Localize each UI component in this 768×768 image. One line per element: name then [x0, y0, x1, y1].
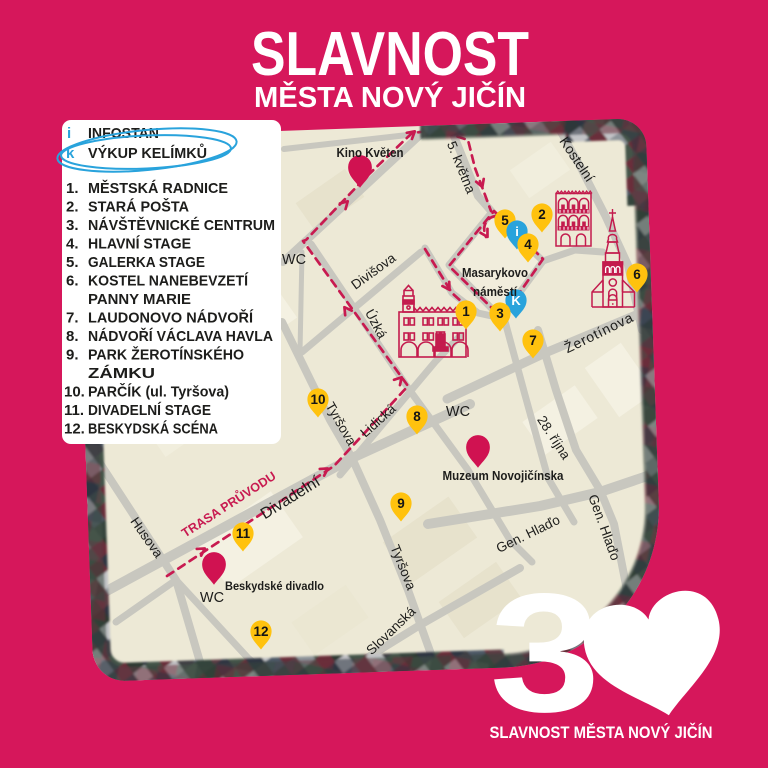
svg-text:4: 4	[524, 237, 532, 252]
svg-text:2.: 2.	[66, 199, 79, 216]
svg-text:PARK ŽEROTÍNSKÉHO: PARK ŽEROTÍNSKÉHO	[88, 346, 244, 364]
svg-text:MĚSTSKÁ RADNICE: MĚSTSKÁ RADNICE	[88, 179, 228, 197]
svg-text:Masarykovo: Masarykovo	[462, 265, 528, 280]
svg-text:7.: 7.	[66, 310, 79, 327]
svg-text:6.: 6.	[66, 273, 79, 290]
svg-text:2: 2	[538, 207, 546, 222]
svg-text:11.: 11.	[64, 402, 84, 419]
svg-text:i: i	[515, 224, 519, 239]
svg-text:11: 11	[236, 526, 251, 541]
svg-text:WC: WC	[282, 252, 306, 268]
svg-text:3: 3	[490, 559, 601, 747]
svg-text:9: 9	[397, 496, 405, 511]
svg-text:8.: 8.	[66, 328, 79, 345]
svg-text:MĚSTA NOVÝ JIČÍN: MĚSTA NOVÝ JIČÍN	[254, 81, 526, 114]
svg-text:4.: 4.	[66, 236, 79, 253]
svg-text:LAUDONOVO NÁDVOŘÍ: LAUDONOVO NÁDVOŘÍ	[88, 309, 254, 327]
svg-text:SLAVNOST MĚSTA NOVÝ JIČÍN: SLAVNOST MĚSTA NOVÝ JIČÍN	[490, 723, 713, 742]
svg-text:12: 12	[253, 624, 268, 639]
svg-text:GALERKA STAGE: GALERKA STAGE	[88, 254, 205, 271]
svg-text:1: 1	[462, 304, 470, 319]
svg-text:Kino Květen: Kino Květen	[337, 145, 404, 160]
svg-text:Muzeum Novojičínska: Muzeum Novojičínska	[443, 469, 565, 483]
svg-text:6: 6	[633, 267, 641, 282]
svg-text:VÝKUP KELÍMKŮ: VÝKUP KELÍMKŮ	[88, 143, 207, 162]
svg-text:BESKYDSKÁ SCÉNA: BESKYDSKÁ SCÉNA	[88, 421, 218, 438]
svg-text:PARČÍK (ul. Tyršova): PARČÍK (ul. Tyršova)	[88, 383, 229, 401]
svg-text:HLAVNÍ STAGE: HLAVNÍ STAGE	[88, 236, 191, 253]
svg-text:WC: WC	[446, 404, 470, 420]
svg-text:DIVADELNÍ STAGE: DIVADELNÍ STAGE	[88, 402, 211, 419]
svg-text:KOSTEL NANEBEVZETÍ: KOSTEL NANEBEVZETÍ	[88, 273, 249, 290]
svg-text:3: 3	[496, 306, 504, 321]
svg-text:NÁVŠTĚVNICKÉ CENTRUM: NÁVŠTĚVNICKÉ CENTRUM	[88, 216, 275, 234]
svg-text:1.: 1.	[66, 180, 79, 197]
svg-text:12.: 12.	[64, 421, 85, 438]
svg-text:8: 8	[413, 409, 421, 424]
svg-text:9.: 9.	[66, 347, 79, 364]
svg-text:STARÁ POŠTA: STARÁ POŠTA	[88, 198, 189, 216]
svg-text:NÁDVOŘÍ VÁCLAVA HAVLA: NÁDVOŘÍ VÁCLAVA HAVLA	[88, 327, 273, 345]
svg-text:ZÁMKU: ZÁMKU	[88, 365, 155, 382]
svg-text:i: i	[67, 125, 71, 142]
svg-text:10.: 10.	[64, 384, 85, 401]
svg-text:PANNY MARIE: PANNY MARIE	[88, 291, 191, 308]
svg-text:7: 7	[529, 333, 537, 348]
svg-text:3.: 3.	[66, 217, 79, 234]
svg-text:náměstí: náměstí	[473, 284, 518, 299]
svg-text:WC: WC	[200, 590, 224, 606]
svg-text:SLAVNOST: SLAVNOST	[251, 20, 529, 89]
svg-text:10: 10	[310, 392, 325, 407]
svg-text:5.: 5.	[66, 254, 79, 271]
svg-text:Beskydské divadlo: Beskydské divadlo	[225, 579, 324, 593]
